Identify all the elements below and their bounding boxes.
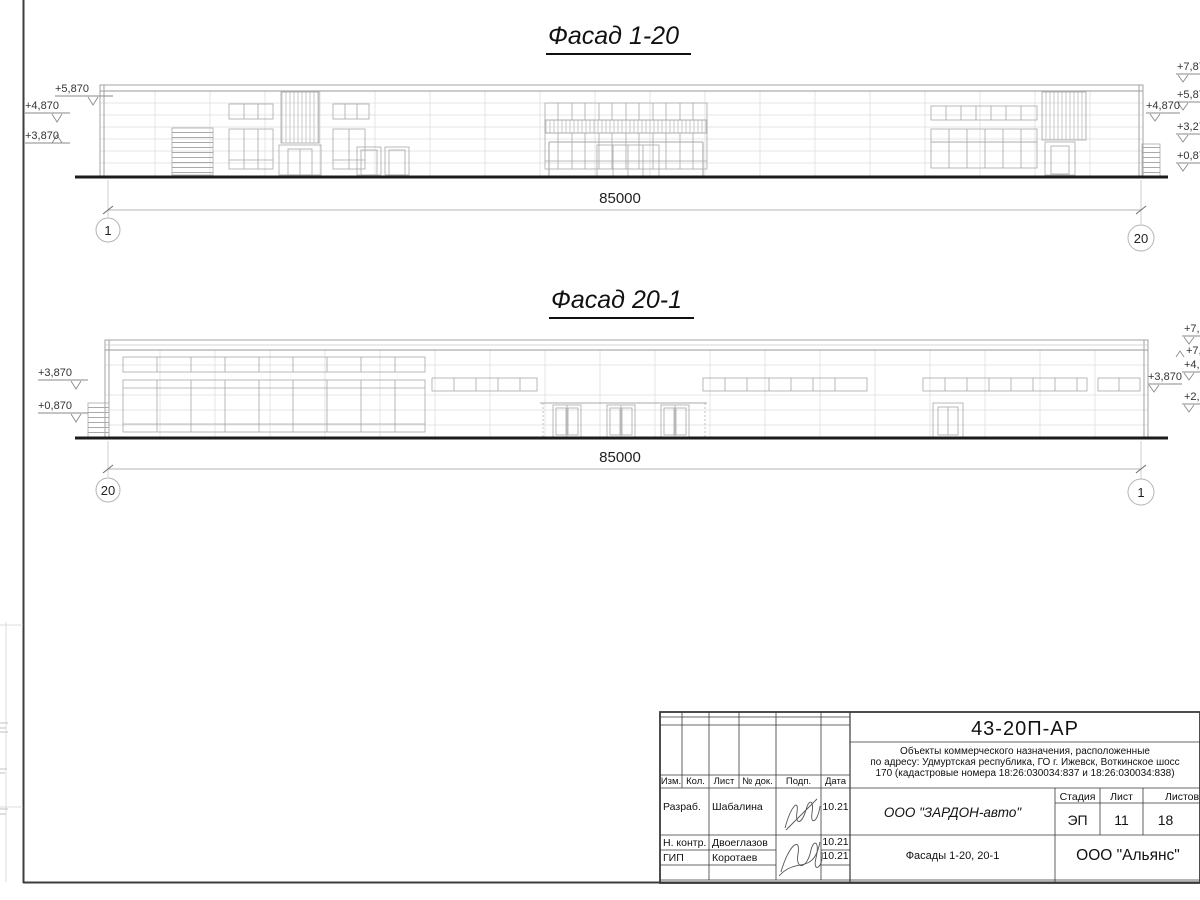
axis-label-1b: 1 [1133, 486, 1149, 499]
louver-panel-right [1042, 92, 1086, 140]
elevation-mark: +5,870 [55, 84, 89, 95]
tb-col-list: Лист [709, 777, 739, 787]
dimension-value: 85000 [560, 450, 680, 465]
elevation-mark: +2,1 [1184, 392, 1200, 403]
signer-date: 10.21 [821, 851, 850, 862]
tb-col-izm: Изм. [660, 777, 682, 787]
roller-gate [172, 128, 213, 175]
elevation-mark: +4,870 [1146, 101, 1180, 112]
elevation-mark: +4,870 [25, 101, 59, 112]
facade-1-title: Фасад 1-20 [546, 24, 691, 55]
elevation-mark: +0,870 [38, 401, 72, 412]
facade-2-drawing [75, 340, 1168, 438]
elevation-mark: +3,870 [1148, 372, 1182, 383]
tb-col-kol: Кол. [682, 777, 709, 787]
stage-label: Стадия [1055, 792, 1100, 803]
elevation-mark: +5,87 [1177, 90, 1200, 101]
signature-2 [779, 842, 822, 876]
signer-date: 10.21 [821, 837, 850, 848]
elevation-mark: +7,87 [1177, 62, 1200, 73]
dimension-value: 85000 [560, 191, 680, 206]
tb-col-podp: Подп. [776, 777, 821, 787]
signer-role: Н. контр. [663, 838, 706, 849]
elevation-mark: +3,27 [1177, 122, 1200, 133]
level-arrow-icon [88, 97, 98, 105]
signer-name: Коротаев [712, 853, 757, 864]
elevation-mark: +0,87 [1177, 151, 1200, 162]
project-description: Объекты коммерческого назначения, распол… [850, 747, 1200, 757]
louver-panel [281, 92, 319, 143]
facade-2-title: Фасад 20-1 [549, 288, 694, 319]
project-description: 170 (кадастровые номера 18:26:030034:837… [850, 769, 1200, 779]
contractor-company: ООО "Альянс" [1056, 848, 1200, 864]
sheet-number: 11 [1100, 813, 1143, 827]
signature-1 [785, 799, 820, 830]
elevation-mark: +3,870 [38, 368, 72, 379]
elevation-mark: +3,870 [25, 131, 59, 142]
elevation-mark: +4,8 [1184, 360, 1200, 371]
signer-role: Разраб. [663, 802, 701, 813]
document-code: 43-20П-АР [850, 719, 1200, 739]
signer-name: Шабалина [712, 802, 763, 813]
project-description: по адресу: Удмуртская республика, ГО г. … [850, 758, 1200, 768]
elevation-marks-facade-2 [38, 336, 1200, 422]
elevation-mark: +7, [1186, 346, 1200, 357]
sheets-label: Листов [1146, 792, 1200, 803]
axis-label-20: 20 [1129, 232, 1153, 245]
sheet-label: Лист [1100, 792, 1143, 803]
facade-1-drawing [75, 85, 1168, 177]
sheets-total: 18 [1143, 813, 1188, 827]
axis-label-1: 1 [100, 224, 116, 237]
adjacent-sheet-edge [0, 622, 23, 882]
drawing-sheet: { "facade1": { "title": "Фасад 1-20", "d… [0, 0, 1200, 900]
fire-ladder [1142, 144, 1160, 176]
client-company: ООО "ЗАРДОН-авто" [850, 806, 1055, 820]
signer-name: Двоеглазов [712, 838, 768, 849]
tb-col-ndok: № док. [739, 777, 776, 787]
drawing-title: Фасады 1-20, 20-1 [850, 851, 1055, 862]
signer-date: 10.21 [821, 802, 850, 813]
stage-value: ЭП [1055, 813, 1100, 827]
elevation-mark: +7,8 [1184, 324, 1200, 335]
side-shutter [88, 403, 109, 437]
axis-label-20b: 20 [96, 484, 120, 497]
tb-col-data: Дата [821, 777, 850, 787]
signer-role: ГИП [663, 853, 684, 864]
